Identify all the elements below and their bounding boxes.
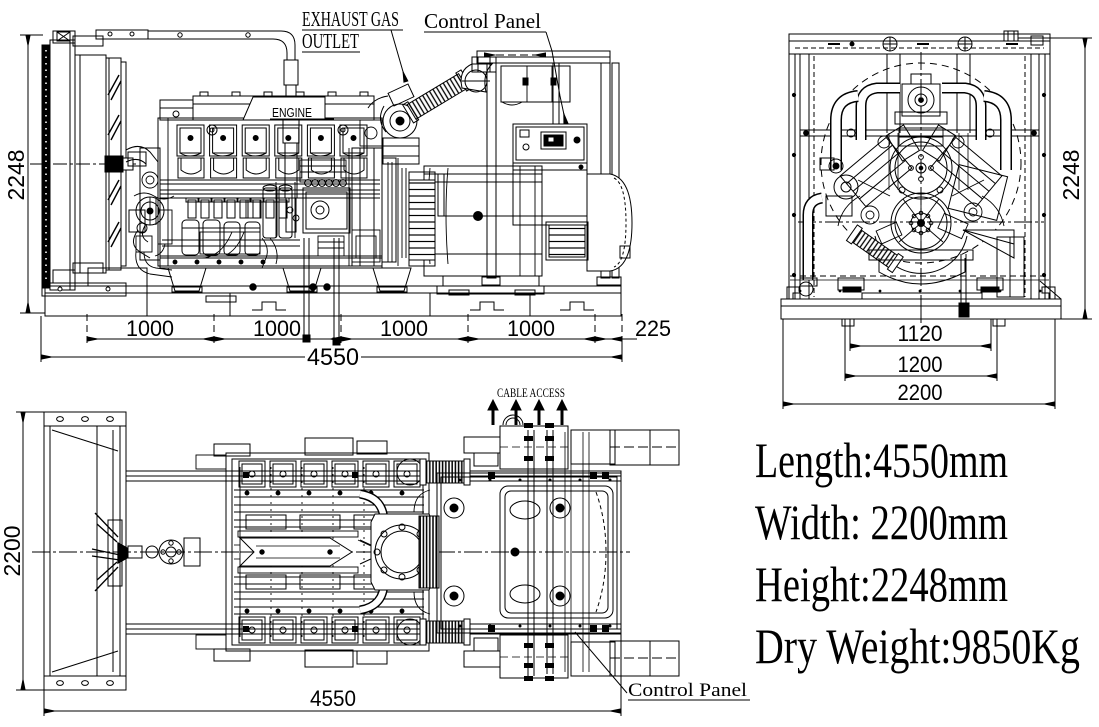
- svg-text:4550: 4550: [307, 344, 359, 371]
- svg-text:4550: 4550: [310, 686, 356, 711]
- svg-text:2200: 2200: [0, 526, 25, 577]
- svg-text:Length:4550mm: Length:4550mm: [755, 432, 1008, 488]
- svg-text:ENGINE: ENGINE: [272, 105, 312, 120]
- svg-text:1200: 1200: [898, 352, 943, 377]
- svg-text:2248: 2248: [1058, 150, 1084, 201]
- svg-text:2200: 2200: [898, 380, 943, 405]
- svg-text:CABLE ACCESS: CABLE ACCESS: [497, 385, 565, 400]
- svg-text:1120: 1120: [898, 321, 943, 346]
- svg-text:Height:2248mm: Height:2248mm: [755, 556, 1008, 612]
- svg-text:225: 225: [635, 316, 671, 341]
- svg-text:1000: 1000: [126, 316, 174, 341]
- svg-text:Dry Weight:9850Kg: Dry Weight:9850Kg: [755, 618, 1080, 674]
- svg-text:Width: 2200mm: Width: 2200mm: [755, 494, 1008, 550]
- svg-text:Control Panel: Control Panel: [424, 9, 541, 33]
- svg-text:2248: 2248: [3, 150, 29, 201]
- svg-text:1000: 1000: [380, 316, 428, 341]
- svg-text:OUTLET: OUTLET: [302, 29, 359, 53]
- svg-text:1000: 1000: [253, 316, 301, 341]
- svg-text:Control Panel: Control Panel: [628, 680, 747, 701]
- svg-text:EXHAUST GAS: EXHAUST GAS: [302, 7, 399, 31]
- svg-text:1000: 1000: [507, 316, 555, 341]
